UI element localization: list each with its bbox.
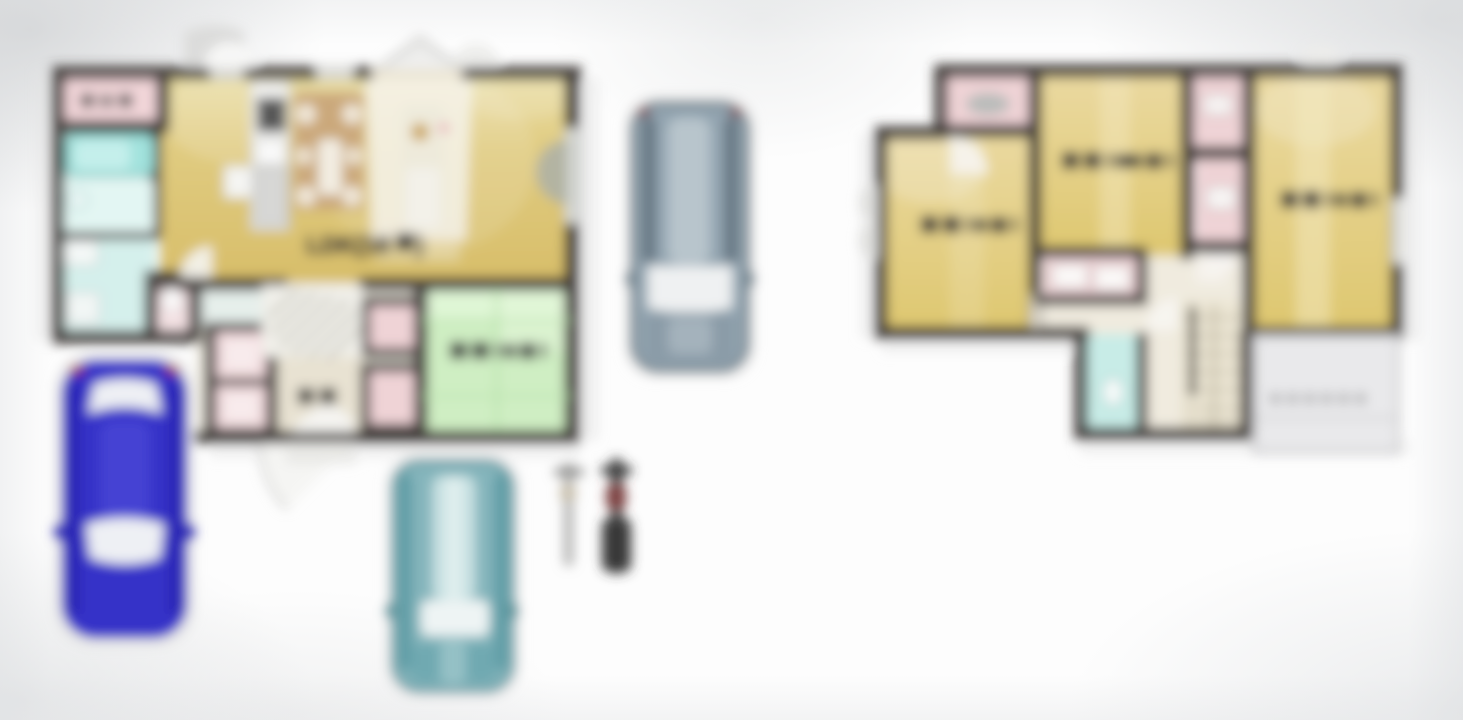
svg-text:): ) — [416, 232, 424, 259]
svg-text:LDK(16: LDK(16 — [306, 232, 390, 259]
